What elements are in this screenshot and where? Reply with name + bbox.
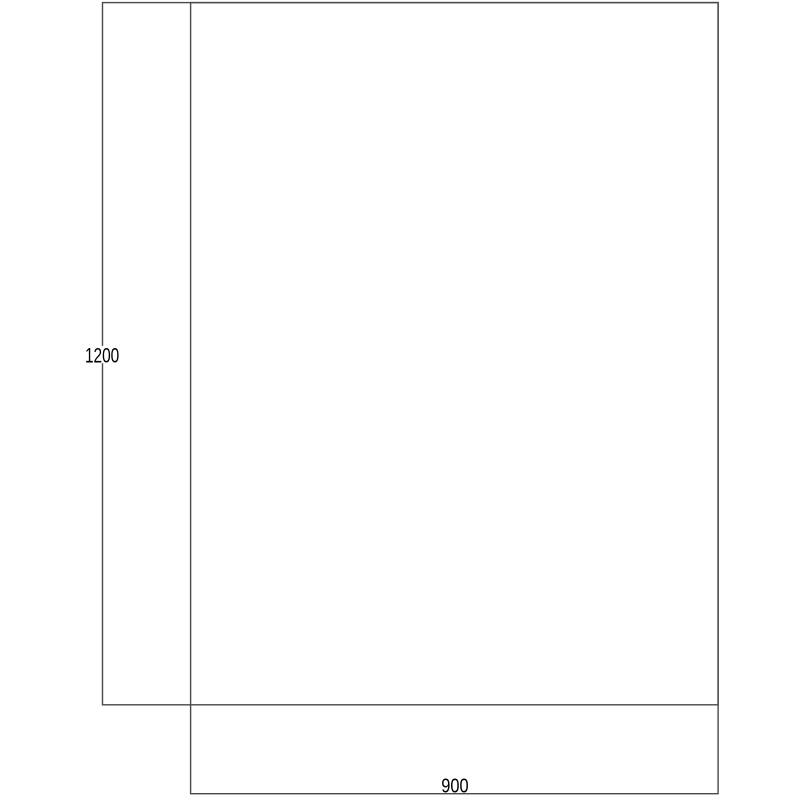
svg-text:1200: 1200 bbox=[85, 344, 119, 368]
svg-text:900: 900 bbox=[441, 775, 468, 798]
